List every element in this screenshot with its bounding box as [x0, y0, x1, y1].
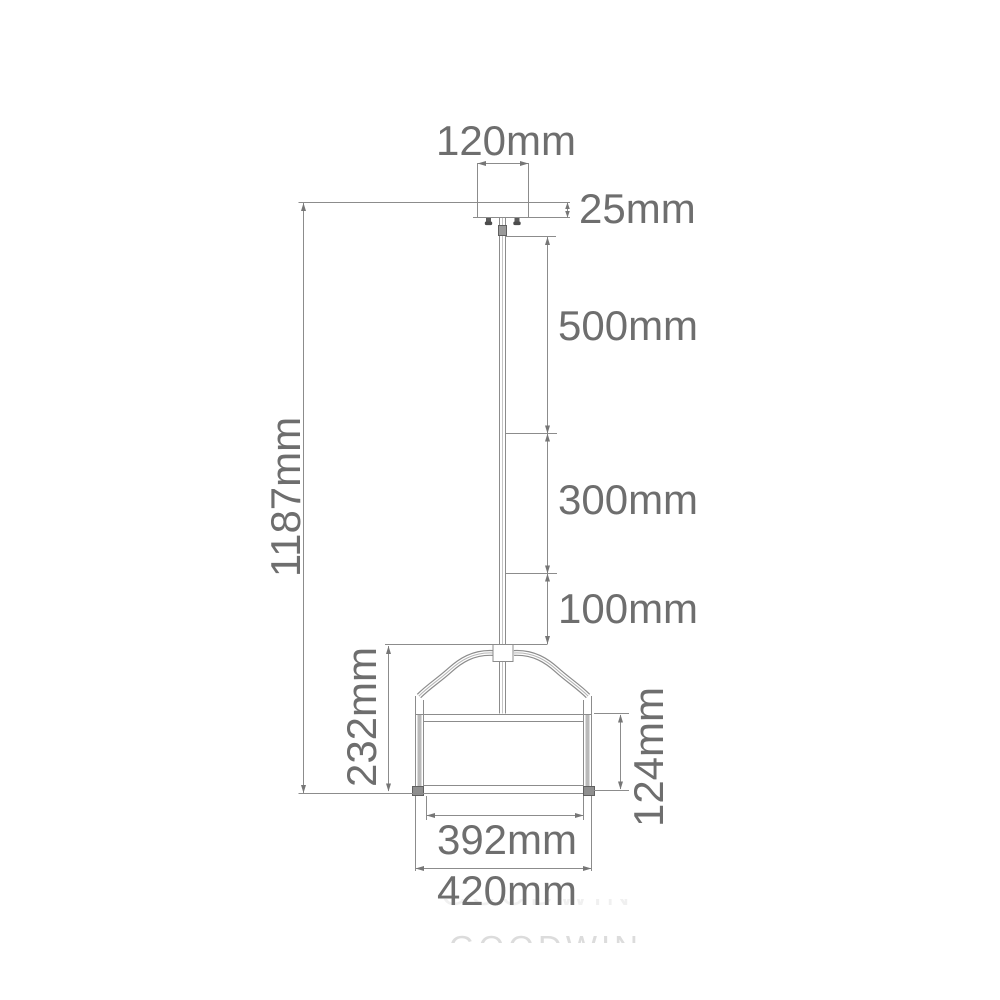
dim-shade-height: [385, 645, 548, 792]
watermark-fragment-upper: GOODWIN: [441, 899, 631, 912]
dim-label-drum-height: 124mm: [628, 687, 670, 827]
dim-label-rod-middle: 300mm: [558, 479, 698, 521]
dim-drum-height: [594, 714, 629, 791]
dim-label-inner-diameter: 392mm: [437, 819, 577, 861]
dim-label-rod-upper: 500mm: [558, 305, 698, 347]
pendant-light-dimension-diagram: 120mm 25mm 500mm 300mm 100mm 1187mm 232m…: [0, 0, 1000, 1000]
dim-label-rod-lower: 100mm: [558, 588, 698, 630]
dim-rod-sections: [505, 237, 557, 645]
shade-holder: [493, 645, 513, 662]
dim-canopy-height: [565, 203, 570, 218]
suspension-rod: [499, 218, 507, 714]
dim-label-canopy-height: 25mm: [579, 188, 696, 230]
drum-shade: [413, 696, 595, 796]
watermark-fragment-lower: GOODWIN: [449, 931, 639, 943]
canopy-outline: [473, 161, 570, 218]
dim-label-canopy-width: 120mm: [436, 120, 576, 162]
dim-label-overall-drop: 1187mm: [265, 417, 307, 577]
dim-label-shade-height: 232mm: [341, 647, 383, 787]
